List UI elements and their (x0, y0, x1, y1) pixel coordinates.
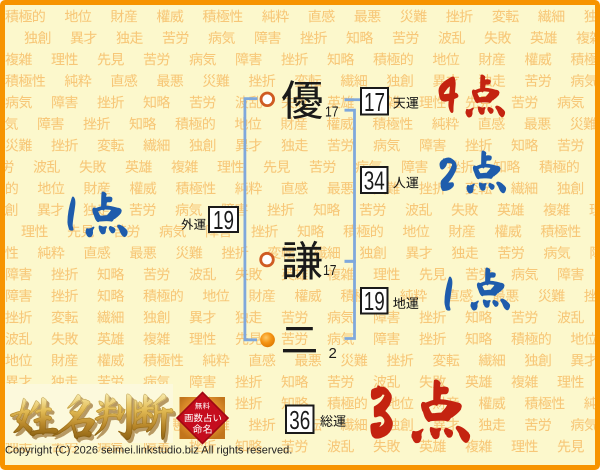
svg-text:36: 36 (289, 405, 310, 435)
svg-text:Copyright (C) 2026 seimei.link: Copyright (C) 2026 seimei.linkstudio.biz… (5, 445, 292, 457)
svg-text:17: 17 (323, 262, 337, 279)
svg-text:19: 19 (213, 205, 234, 235)
svg-text:2: 2 (329, 345, 337, 362)
svg-text:19: 19 (364, 286, 385, 316)
svg-text:17: 17 (364, 87, 385, 117)
svg-text:17: 17 (325, 103, 339, 120)
svg-text:34: 34 (364, 166, 385, 196)
